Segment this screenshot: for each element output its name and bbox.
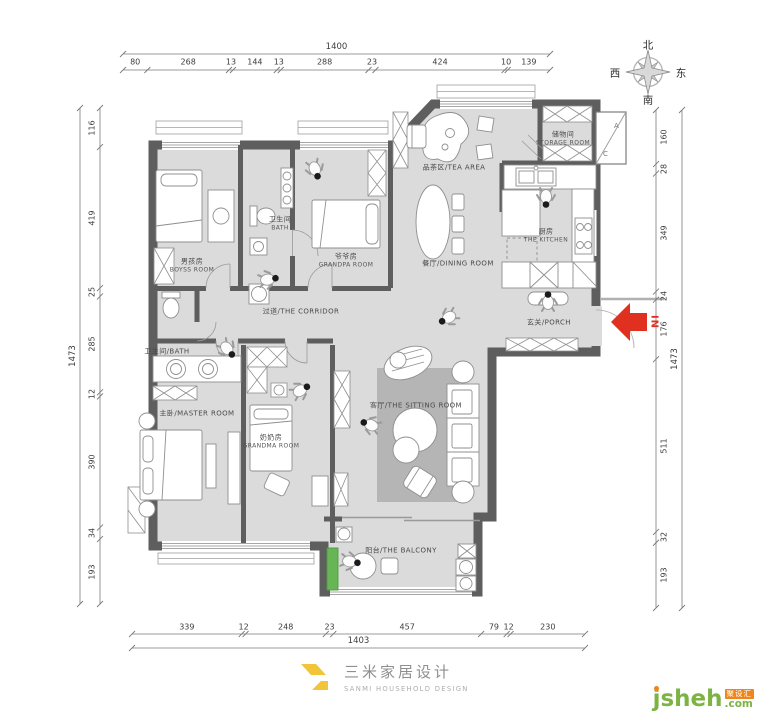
entrance-arrow <box>611 303 647 341</box>
boys-bed <box>156 170 202 242</box>
entrance-in-label: IN <box>649 315 660 329</box>
floor-plan-page: A C 男孩房BOYSS ROOM卫生间BATH爷爷房GRANDPA ROOM品… <box>0 0 760 719</box>
pouf <box>390 352 406 368</box>
compass-icon <box>626 50 670 94</box>
shoe-cabinet <box>506 338 578 351</box>
logo-english-name: SANMI HOUSEHOLD DESIGN <box>344 685 469 693</box>
watermark-brand: jsheh <box>653 688 723 711</box>
floor-plan-drawing: A C <box>0 0 760 719</box>
watermark-tld: .com <box>725 699 753 711</box>
dining-table <box>416 185 464 259</box>
site-watermark: jsheh 聚设汇 .com <box>653 688 754 711</box>
side-table <box>452 361 474 383</box>
dining-wardrobe <box>393 112 408 168</box>
boys-closet <box>154 248 174 284</box>
compass-west-label: 西 <box>610 66 621 81</box>
sofa <box>447 384 479 486</box>
ac-label-c: C <box>603 150 608 158</box>
ac-label-a: A <box>614 122 619 130</box>
ac-shaft: A C <box>596 112 626 164</box>
bath-lower-cabinet <box>153 386 197 400</box>
grandpa-wardrobe <box>368 150 386 196</box>
compass-north-label: 北 <box>643 38 654 53</box>
logo-mark-icon <box>299 661 335 693</box>
side-table <box>452 481 474 503</box>
boys-desk <box>208 190 234 242</box>
compass-south-label: 南 <box>643 93 654 108</box>
logo-chinese-name: 三米家居设计 <box>344 661 469 682</box>
grandpa-bed <box>312 200 380 248</box>
watermark-dot-icon <box>654 686 659 691</box>
compass-east-label: 东 <box>676 66 687 81</box>
company-logo: 三米家居设计 SANMI HOUSEHOLD DESIGN <box>299 661 469 693</box>
